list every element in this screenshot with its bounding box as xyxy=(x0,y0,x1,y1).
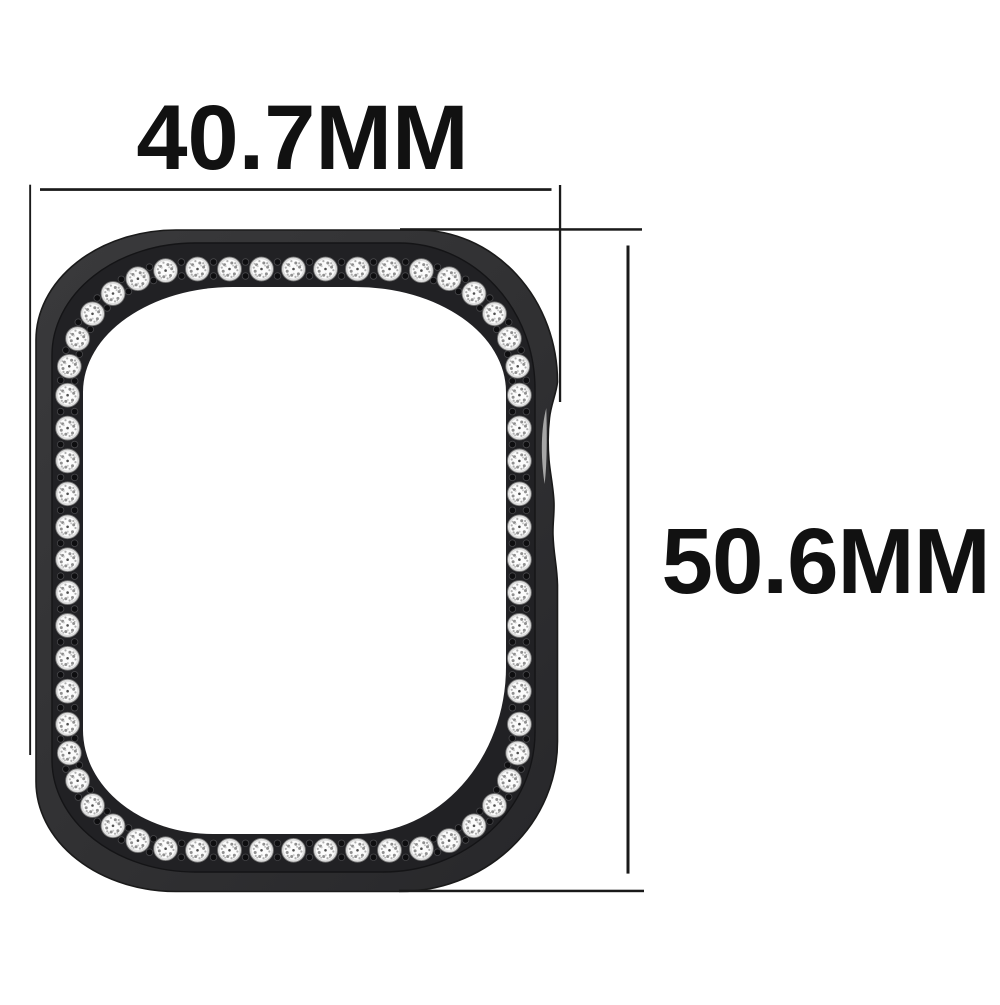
svg-text:50.6MM: 50.6MM xyxy=(662,509,990,613)
svg-text:40.7MM: 40.7MM xyxy=(136,87,468,189)
